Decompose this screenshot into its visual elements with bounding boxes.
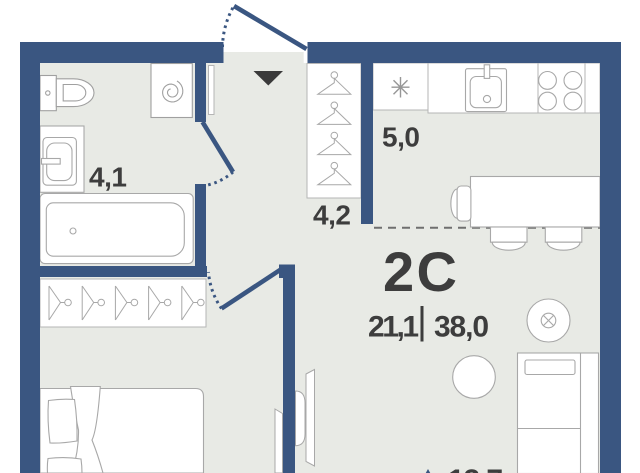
svg-text:4,1: 4,1 bbox=[89, 162, 127, 193]
svg-text:5,0: 5,0 bbox=[382, 122, 420, 153]
svg-text:13,7: 13,7 bbox=[448, 464, 503, 473]
svg-text:21,1: 21,1 bbox=[368, 311, 419, 344]
svg-text:38,0: 38,0 bbox=[434, 311, 489, 344]
svg-text:4,2: 4,2 bbox=[313, 200, 351, 231]
svg-text:2C: 2C bbox=[383, 240, 457, 303]
